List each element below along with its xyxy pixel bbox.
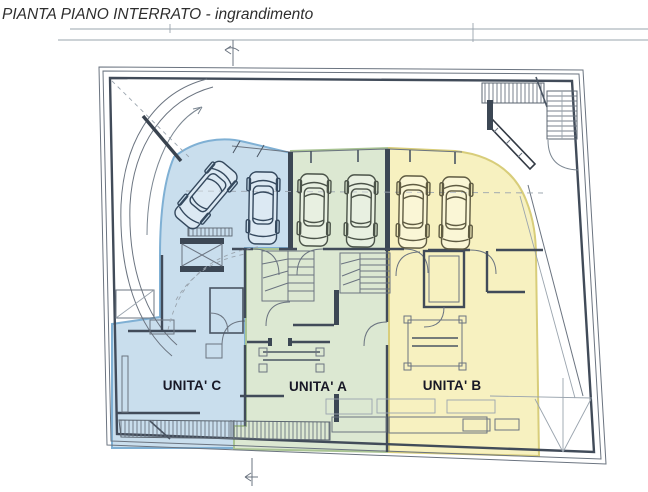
floor-plan-page: PIANTA PIANO INTERRATO - ingrandimento	[0, 0, 648, 492]
car	[439, 177, 473, 250]
page-title: PIANTA PIANO INTERRATO - ingrandimento	[2, 6, 314, 23]
entry-gate-icon	[487, 100, 535, 169]
garage-divider-wall	[385, 149, 390, 251]
car	[396, 176, 430, 249]
stair-top-right	[547, 91, 578, 170]
floor-plan-drawing: PIANTA PIANO INTERRATO - ingrandimento	[0, 0, 648, 492]
car	[344, 175, 378, 248]
car	[297, 174, 331, 247]
car	[246, 172, 280, 245]
unit-a-label: UNITA' A	[289, 379, 347, 394]
unit-b-label: UNITA' B	[423, 378, 482, 393]
corner-guide-dashed	[112, 81, 190, 158]
section-marker-top	[225, 40, 239, 66]
garage-divider-wall	[288, 152, 293, 249]
section-marker-bottom	[245, 458, 258, 486]
unit-c-label: UNITA' C	[163, 378, 222, 393]
